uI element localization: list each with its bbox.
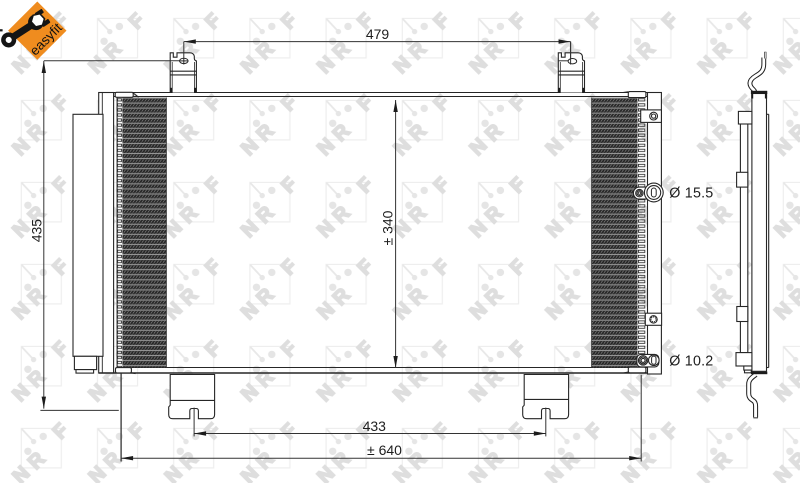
svg-text:± 640: ± 640 [367, 442, 402, 458]
svg-text:435: 435 [28, 219, 44, 243]
svg-text:± 340: ± 340 [379, 210, 395, 245]
svg-text:Ø 15.5: Ø 15.5 [669, 186, 713, 202]
svg-text:Ø 10.2: Ø 10.2 [669, 354, 713, 370]
svg-text:433: 433 [363, 418, 387, 434]
svg-text:479: 479 [366, 26, 390, 42]
